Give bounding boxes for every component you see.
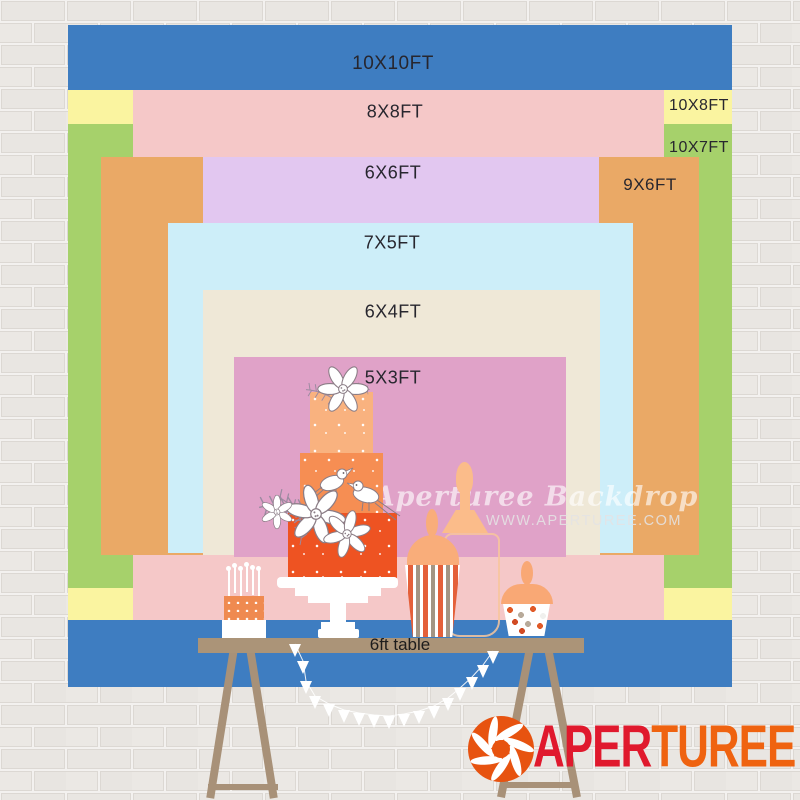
mini-cake-base bbox=[222, 620, 266, 638]
logo-text-primary: APER bbox=[533, 714, 651, 780]
mini-cake-body bbox=[224, 596, 264, 620]
watermark-url: WWW.APERTUREE.COM bbox=[486, 513, 682, 529]
watermark-script: Aperturee Backdrop bbox=[374, 482, 699, 513]
popcorn-box-knob bbox=[426, 509, 438, 537]
table-crossbar-left bbox=[208, 784, 278, 790]
candy-jar-knob bbox=[521, 561, 533, 585]
cake-stand-plate bbox=[277, 577, 398, 588]
size-label-9x6ft: 9X6FT bbox=[623, 175, 677, 195]
cake-stand-step2 bbox=[308, 596, 368, 603]
popcorn-box-cup bbox=[405, 565, 460, 637]
size-label-10x8ft: 10X8FT bbox=[669, 97, 729, 115]
aperture-shutter-icon bbox=[466, 714, 536, 784]
size-label-6x4ft: 6X4FT bbox=[365, 302, 422, 323]
candle bbox=[240, 570, 242, 596]
backdrop-size-chart-page: Aperturee Backdrop WWW.APERTUREE.COM bbox=[0, 0, 800, 800]
size-label-10x10ft: 10X10FT bbox=[352, 53, 434, 75]
size-label-6x6ft: 6X6FT bbox=[365, 163, 422, 184]
candle bbox=[228, 570, 230, 596]
size-label-7x5ft: 7X5FT bbox=[364, 233, 421, 254]
glass-jar-knob bbox=[460, 491, 470, 511]
candy-jar-cup bbox=[503, 604, 550, 636]
cake-stand-stem bbox=[330, 603, 346, 623]
candle bbox=[252, 569, 254, 595]
size-label-10x7ft: 10X7FT bbox=[669, 139, 729, 157]
candle bbox=[258, 570, 260, 596]
logo-text-secondary: TUREE bbox=[651, 714, 795, 780]
cake-stand-step1 bbox=[295, 588, 381, 596]
brand-logo-text: APERTUREE bbox=[533, 714, 795, 782]
glass-jar-finial bbox=[456, 462, 473, 494]
candle bbox=[234, 567, 236, 593]
mini-cake bbox=[220, 558, 270, 640]
size-label-8x8ft: 8X8FT bbox=[367, 102, 424, 123]
size-label-5x3ft: 5X3FT bbox=[365, 368, 422, 389]
